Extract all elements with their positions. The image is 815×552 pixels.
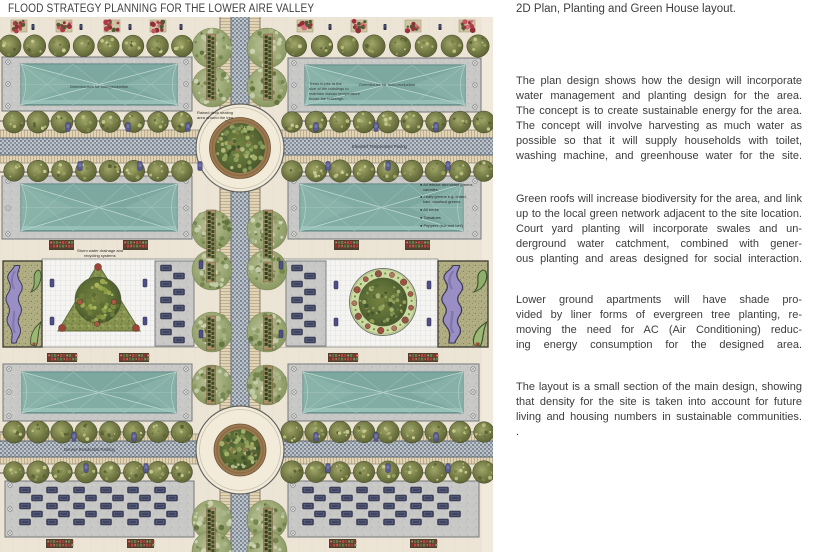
svg-text:varieties: varieties (423, 187, 438, 192)
svg-text:● Tomatoes: ● Tomatoes (420, 215, 441, 220)
svg-text:● All herbs: ● All herbs (420, 207, 439, 212)
svg-text:Elevated Temperature Paving: Elevated Temperature Paving (352, 144, 408, 149)
svg-text:Denser Residential Parking: Denser Residential Parking (64, 447, 115, 452)
svg-text:recycling systems: recycling systems (84, 253, 116, 258)
svg-text:● Peppers (hot and bell): ● Peppers (hot and bell) (420, 223, 464, 228)
svg-text:inside the buildings.: inside the buildings. (309, 96, 344, 101)
svg-text:Greenhouses for food productio: Greenhouses for food production (70, 84, 128, 89)
svg-text:area around the tree: area around the tree (197, 115, 234, 120)
svg-text:kale, mustard greens: kale, mustard greens (423, 199, 460, 204)
svg-text:Greenhouse for food production: Greenhouse for food production (359, 82, 415, 87)
